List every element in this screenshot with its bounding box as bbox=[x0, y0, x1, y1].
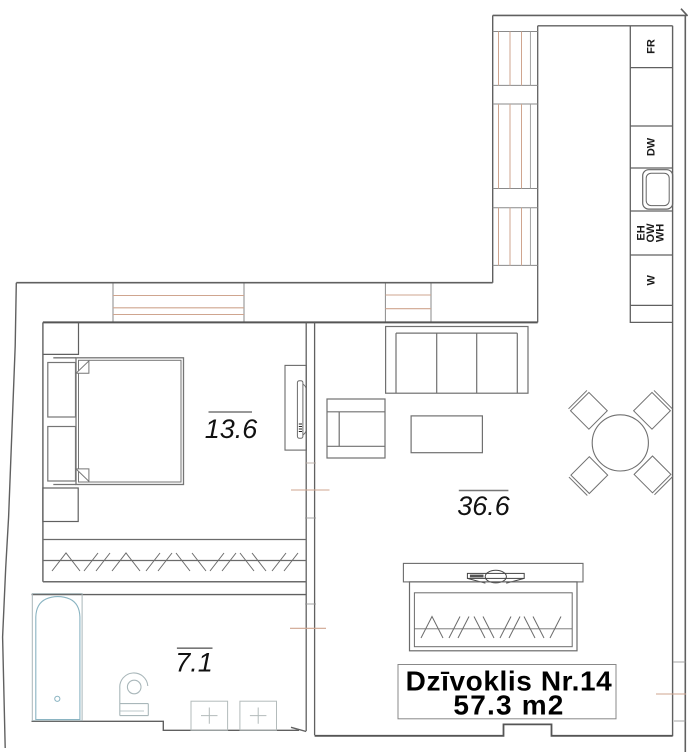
svg-text:57.3 m2: 57.3 m2 bbox=[453, 690, 564, 721]
svg-text:13.6: 13.6 bbox=[205, 414, 259, 444]
svg-text:7.1: 7.1 bbox=[175, 648, 213, 678]
svg-text:WH: WH bbox=[654, 224, 666, 242]
svg-text:36.6: 36.6 bbox=[457, 491, 511, 521]
svg-text:FR: FR bbox=[645, 39, 657, 54]
svg-text:W: W bbox=[645, 274, 657, 285]
svg-text:DW: DW bbox=[645, 137, 657, 156]
